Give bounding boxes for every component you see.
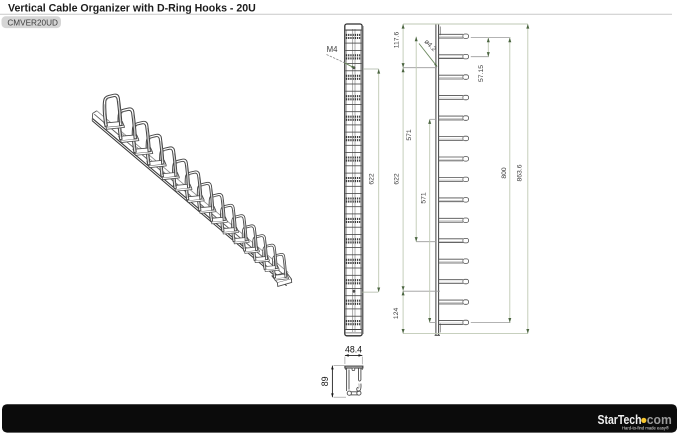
svg-text:622: 622	[393, 173, 400, 185]
svg-text:89: 89	[320, 376, 330, 386]
svg-text:571: 571	[420, 192, 427, 204]
svg-text:800: 800	[501, 167, 508, 179]
svg-text:571: 571	[406, 129, 413, 141]
svg-text:Hard-to-find made easy®: Hard-to-find made easy®	[622, 424, 670, 430]
svg-text:Vertical Cable Organizer with: Vertical Cable Organizer with D-Ring Hoo…	[8, 2, 256, 14]
svg-text:117.6: 117.6	[393, 32, 400, 49]
svg-text:M4: M4	[327, 45, 338, 54]
svg-text:57.15: 57.15	[478, 65, 485, 82]
svg-text:863.6: 863.6	[517, 164, 524, 181]
svg-text:622: 622	[369, 173, 376, 185]
svg-text:CMVER20UD: CMVER20UD	[7, 18, 58, 27]
svg-text:124: 124	[393, 308, 400, 320]
svg-text:48.4: 48.4	[345, 345, 362, 355]
